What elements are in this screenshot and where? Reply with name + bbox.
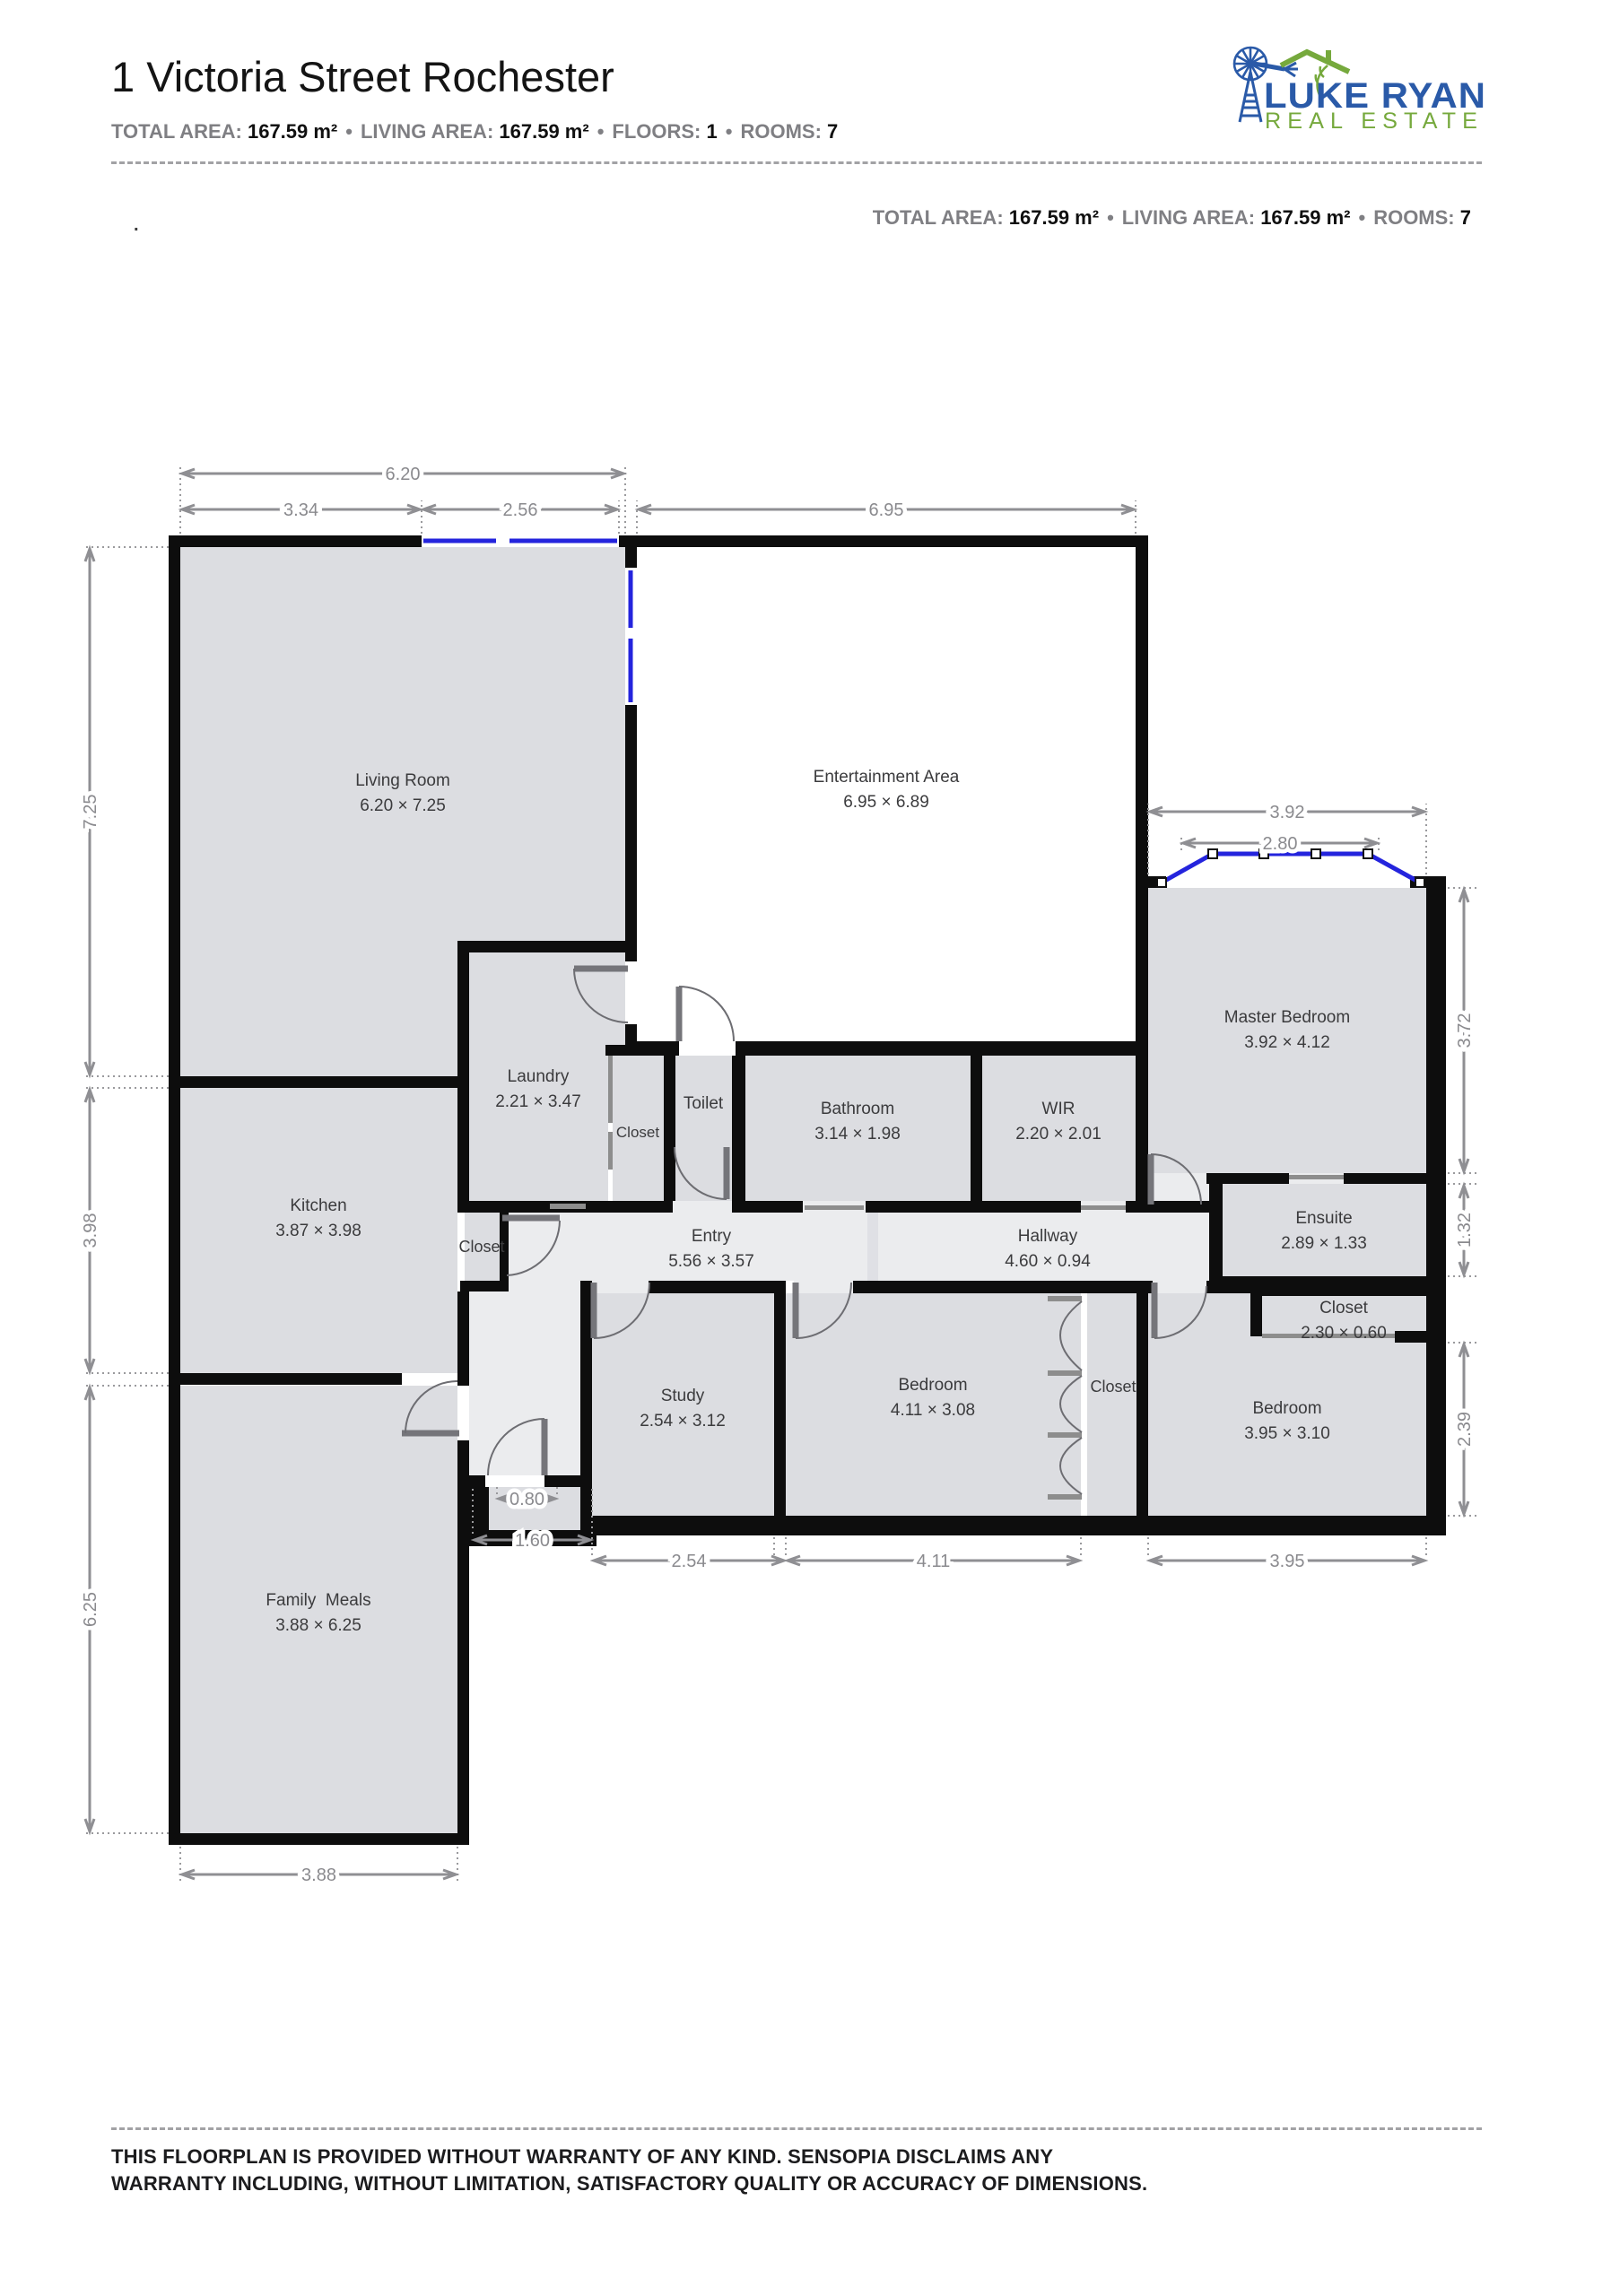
dim-label: 6.95	[869, 500, 904, 520]
room-label: 3.14 × 1.98	[814, 1125, 901, 1144]
wall	[853, 1281, 1153, 1293]
room-label: Closet	[1319, 1299, 1369, 1318]
room-label: Bedroom	[898, 1376, 967, 1395]
wall	[1136, 535, 1148, 1201]
wall	[637, 535, 1147, 547]
disclaimer-line2: WARRANTY INCLUDING, WITHOUT LIMITATION, …	[111, 2170, 1147, 2197]
dim-label: 3.88	[301, 1865, 336, 1885]
wall	[169, 1833, 469, 1845]
thin-wall	[1081, 1205, 1126, 1210]
wall	[866, 1201, 1081, 1213]
room-label: 2.21 × 3.47	[495, 1092, 581, 1111]
dim-label: 3.98	[81, 1213, 100, 1248]
room-label: 5.56 × 3.57	[668, 1252, 754, 1271]
room-label: Entry	[692, 1227, 732, 1246]
dim-label: 3.95	[1270, 1552, 1305, 1571]
wall	[169, 1076, 457, 1088]
room-label: Master Bedroom	[1224, 1008, 1350, 1027]
bifold-door-bar	[1048, 1296, 1082, 1301]
room-label: Closet	[616, 1124, 659, 1141]
floorplan-svg: 6.203.342.566.953.922.800.801.602.544.11…	[0, 0, 1611, 2296]
dim-label: 3.34	[283, 500, 318, 520]
bifold-door-bar	[1048, 1432, 1082, 1438]
dim-label: 4.11	[917, 1552, 950, 1571]
room-label: Toilet	[684, 1094, 724, 1113]
room-label: 4.60 × 0.94	[1005, 1252, 1091, 1271]
bay-window-post	[1363, 849, 1372, 858]
thin-wall	[805, 1205, 864, 1210]
wall	[580, 1281, 592, 1518]
wall	[736, 1041, 1147, 1056]
wall	[457, 1440, 469, 1487]
wall	[732, 1201, 803, 1213]
room-label: 2.30 × 0.60	[1301, 1324, 1387, 1343]
wall	[1426, 876, 1446, 1535]
room-label: Entertainment Area	[814, 768, 960, 787]
wall	[169, 535, 422, 547]
thin-wall	[550, 1204, 586, 1209]
room-label: 2.20 × 2.01	[1015, 1125, 1102, 1144]
dim-label: 7.25	[81, 795, 100, 830]
room-label: Laundry	[508, 1067, 570, 1086]
wall	[1395, 1331, 1426, 1343]
room-label: 2.54 × 3.12	[640, 1412, 726, 1431]
dim-label: 3.92	[1270, 803, 1305, 822]
room-master-bedroom	[1148, 888, 1426, 1173]
room-label: 3.88 × 6.25	[275, 1616, 361, 1635]
room-ensuite	[1223, 1184, 1426, 1276]
room-closet-mid	[1087, 1293, 1136, 1516]
room-label: Bedroom	[1252, 1399, 1321, 1418]
wall	[1209, 1173, 1223, 1287]
wall	[1126, 1201, 1209, 1213]
wall	[457, 1291, 469, 1386]
room-label: Bathroom	[821, 1100, 894, 1118]
wall	[971, 1056, 982, 1201]
disclaimer: THIS FLOORPLAN IS PROVIDED WITHOUT WARRA…	[111, 2144, 1147, 2197]
wall	[457, 941, 469, 1206]
bay-window-post	[1311, 849, 1320, 858]
room-label: Ensuite	[1295, 1209, 1352, 1228]
area-gap-study	[592, 1281, 649, 1293]
wall	[625, 705, 637, 961]
thin-wall	[608, 1056, 613, 1123]
floorplan-page: 1 Victoria Street Rochester TOTAL AREA: …	[0, 0, 1611, 2296]
wall	[580, 1516, 1446, 1535]
room-label: 6.20 × 7.25	[360, 796, 446, 815]
bottom-separator	[111, 2127, 1482, 2130]
wall	[625, 1041, 679, 1056]
wall	[605, 1045, 625, 1056]
room-label: WIR	[1042, 1100, 1075, 1118]
wall	[457, 1546, 469, 1845]
area-gap-master	[1151, 1173, 1206, 1184]
wall	[1136, 1281, 1148, 1518]
room-label: Living Room	[355, 771, 450, 790]
wall	[619, 535, 637, 547]
thin-wall	[608, 1132, 613, 1170]
wall	[169, 535, 180, 1845]
wall	[732, 1056, 745, 1201]
wall	[1250, 1285, 1426, 1296]
wall	[649, 1281, 786, 1293]
wall	[469, 1475, 485, 1487]
dim-label: 2.54	[672, 1552, 707, 1571]
bifold-door-bar	[1048, 1494, 1082, 1500]
room-label: Kitchen	[290, 1196, 346, 1215]
room-label: 2.89 × 1.33	[1281, 1234, 1367, 1253]
area-divider	[867, 1213, 878, 1281]
room-label: 3.87 × 3.98	[275, 1222, 361, 1240]
wall	[774, 1281, 786, 1518]
bay-window-icon	[1162, 854, 1420, 883]
room-label: Family Meals	[266, 1591, 370, 1610]
bay-window-post	[1208, 849, 1217, 858]
bay-window-post	[1157, 878, 1166, 887]
wall	[664, 1056, 675, 1201]
room-label: Study	[661, 1387, 705, 1405]
thin-wall	[1289, 1175, 1344, 1179]
wall	[1344, 1173, 1426, 1184]
bay-window-post	[1415, 878, 1424, 887]
area-gap-bedm	[794, 1281, 853, 1293]
dim-label: 6.25	[81, 1592, 100, 1627]
bifold-door-bar	[1048, 1370, 1082, 1376]
wall	[1206, 1281, 1262, 1293]
dim-label: 0.80	[509, 1490, 544, 1509]
room-label: 3.95 × 3.10	[1244, 1424, 1330, 1443]
room-label: Hallway	[1018, 1227, 1078, 1246]
wall	[460, 1281, 509, 1291]
dim-label: 1.60	[515, 1531, 550, 1551]
wall	[625, 547, 637, 568]
dim-label: 1.32	[1455, 1213, 1475, 1248]
area-gap-toilet	[673, 1201, 732, 1213]
dim-label: 3.72	[1455, 1013, 1475, 1048]
room-label: 4.11 × 3.08	[891, 1401, 975, 1420]
room-label: Closet	[458, 1238, 504, 1256]
room-label: Closet	[1090, 1378, 1136, 1396]
wall	[457, 941, 625, 952]
room-label: 3.92 × 4.12	[1244, 1033, 1330, 1052]
dim-label: 2.56	[503, 500, 538, 520]
area-gap-bedr	[1153, 1281, 1206, 1293]
disclaimer-line1: THIS FLOORPLAN IS PROVIDED WITHOUT WARRA…	[111, 2144, 1147, 2170]
dim-label: 2.39	[1455, 1412, 1475, 1447]
room-label: 6.95 × 6.89	[843, 793, 929, 812]
wall	[169, 1373, 402, 1385]
dim-label: 2.80	[1263, 834, 1298, 854]
dim-label: 6.20	[386, 465, 421, 484]
